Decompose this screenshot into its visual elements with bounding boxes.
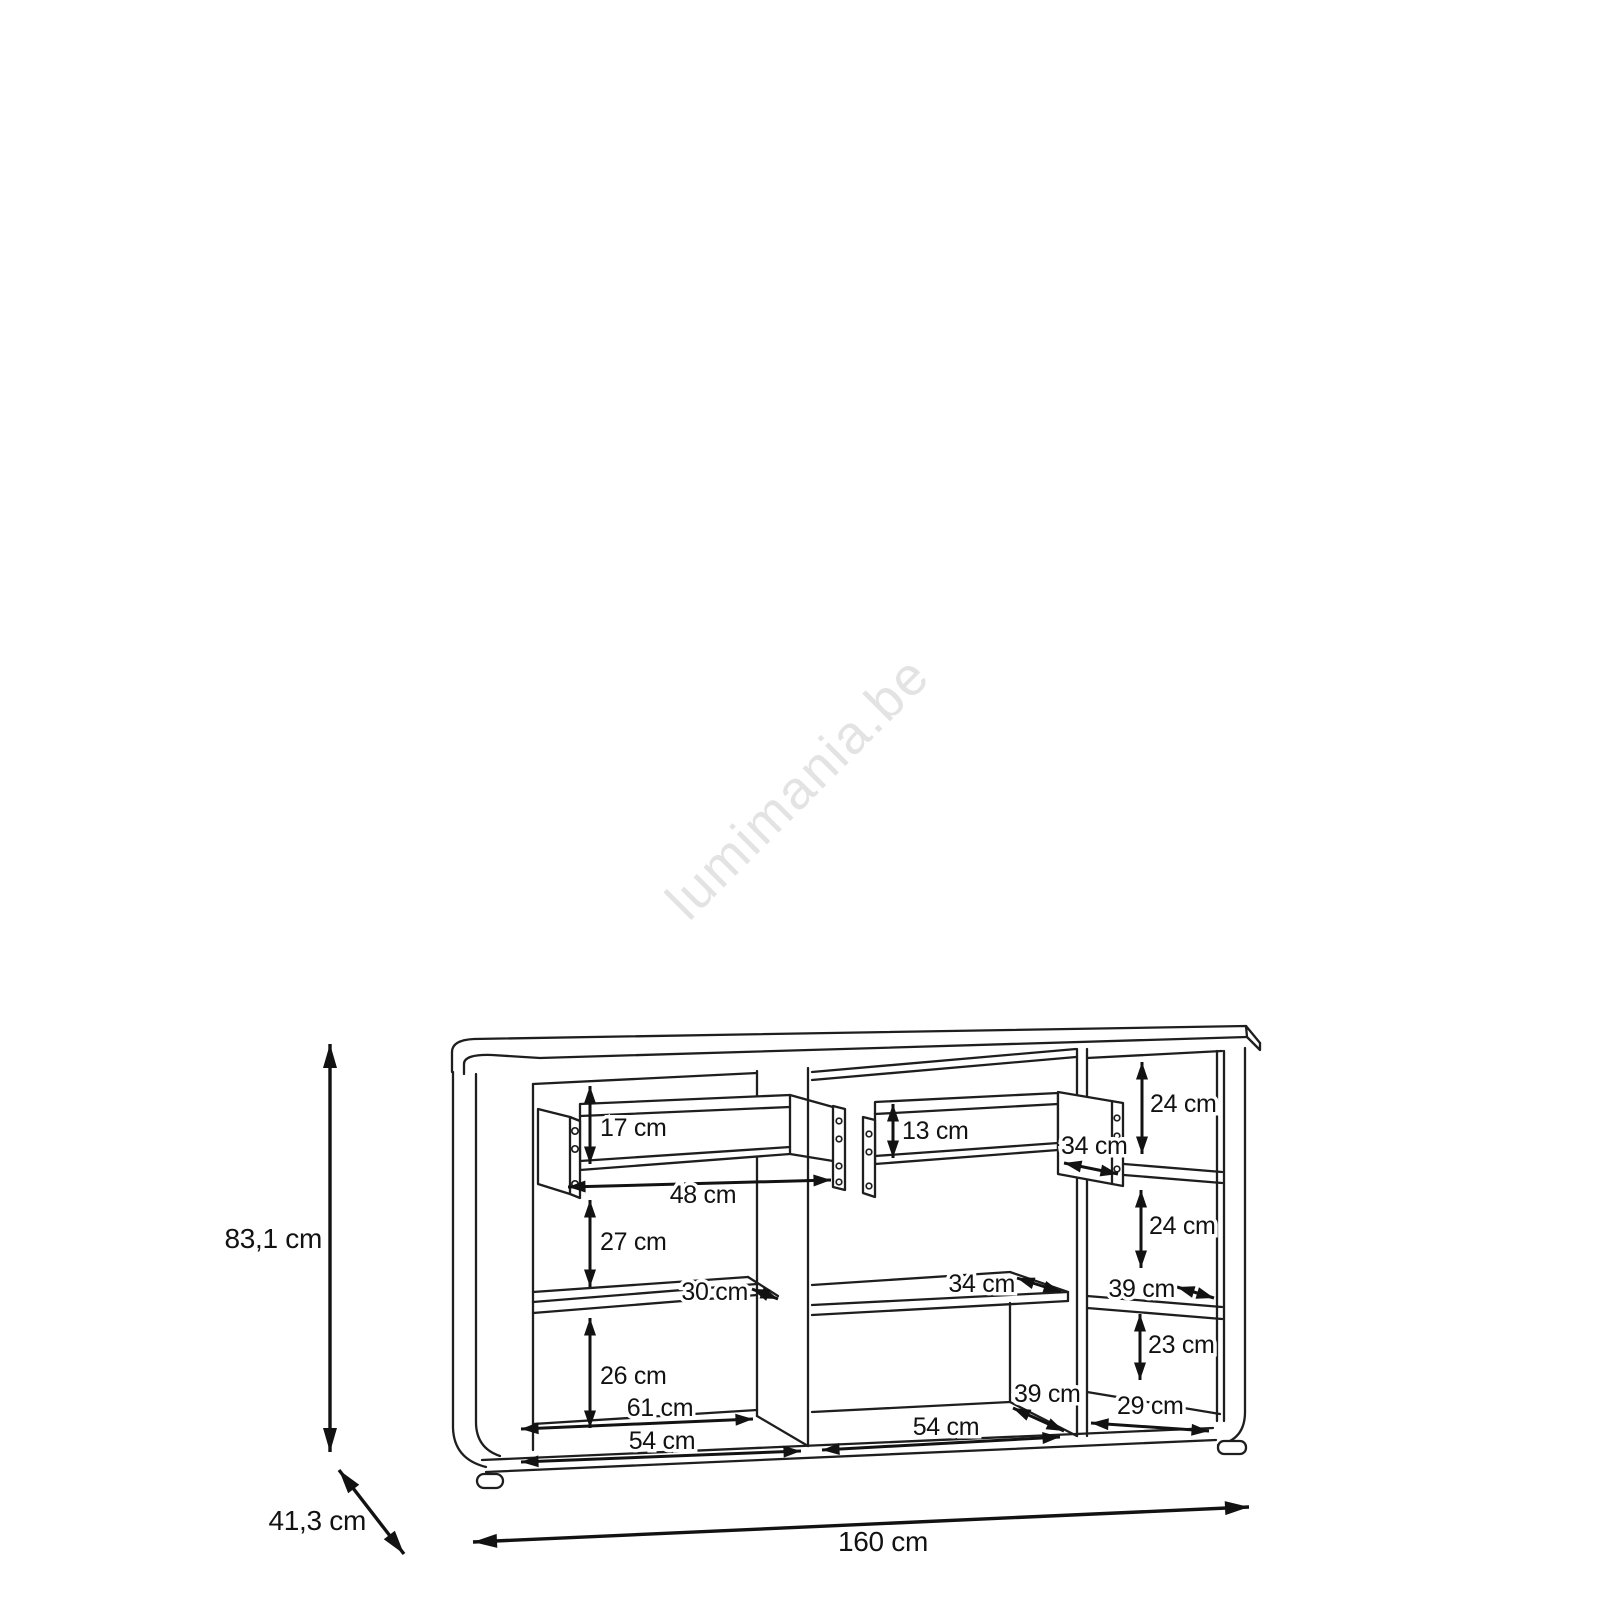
dim-label-middle-shelf-depth: 34 cm: [948, 1270, 1015, 1298]
dim-label-right-bottom-height: 23 cm: [1148, 1331, 1215, 1359]
dim-label-overall-height: 83,1 cm: [225, 1223, 323, 1254]
dim-label-left-bottom-height: 26 cm: [600, 1362, 667, 1390]
dim-label-right-top-height: 24 cm: [1150, 1090, 1217, 1118]
dim-label-overall-depth: 41,3 cm: [269, 1505, 367, 1536]
dim-label-left-front-width: 54 cm: [629, 1427, 696, 1455]
left-foot: [477, 1474, 503, 1488]
left-side-panel-outer: [453, 1072, 486, 1467]
diagram-page: lumimania.be: [0, 0, 1600, 1600]
middle-floor-back-edge: [812, 1402, 1010, 1412]
left-divider-bottom: [757, 1416, 808, 1446]
dim-label-middle-floor-depth: 39 cm: [1014, 1380, 1081, 1408]
back-top-edge-left: [533, 1073, 757, 1084]
back-top-edge-right: [1087, 1051, 1222, 1058]
dim-label-right-width: 29 cm: [1117, 1392, 1184, 1420]
dim-label-middle-drawer-depth: 34 cm: [1061, 1132, 1128, 1160]
screw-hole-icon: [836, 1136, 842, 1142]
dim-label-left-middle-height: 27 cm: [600, 1228, 667, 1256]
furniture-dimension-diagram: lumimania.be: [0, 0, 1600, 1600]
screw-hole-icon: [836, 1163, 842, 1169]
screw-hole-icon: [866, 1183, 872, 1189]
dim-arrow-middle-shelf-depth: [1017, 1278, 1061, 1292]
dim-label-overall-width: 160 cm: [838, 1526, 928, 1557]
screw-hole-icon: [866, 1149, 872, 1155]
left-side-panel-inner: [476, 1074, 500, 1456]
dim-label-middle-front-width: 54 cm: [913, 1413, 980, 1441]
dim-label-left-drawer-width: 48 cm: [670, 1181, 737, 1209]
screw-hole-icon: [572, 1128, 578, 1134]
dim-label-middle-drawer-height: 13 cm: [902, 1117, 969, 1145]
screw-hole-icon: [572, 1146, 578, 1152]
dim-arrow-right-shelf-depth: [1177, 1287, 1214, 1298]
right-shelf2-bottom: [1087, 1308, 1222, 1319]
right-foot: [1218, 1441, 1246, 1454]
dim-label-left-drawer-height: 17 cm: [600, 1114, 667, 1142]
dim-label-left-shelf-depth: 30 cm: [681, 1278, 748, 1306]
screw-hole-icon: [866, 1131, 872, 1137]
dim-label-right-middle-height: 24 cm: [1149, 1212, 1216, 1240]
left-drawer-right-connectors: [790, 1095, 833, 1161]
screw-hole-icon: [836, 1118, 842, 1124]
screw-hole-icon: [1114, 1115, 1120, 1121]
screw-hole-icon: [1114, 1166, 1120, 1172]
right-side-panel-outer: [1218, 1048, 1245, 1445]
dim-label-left-back-width: 61 cm: [627, 1394, 694, 1422]
watermark-text: lumimania.be: [655, 645, 941, 931]
dim-arrow-middle-floor-depth: [1013, 1408, 1064, 1431]
dim-label-right-shelf-depth: 39 cm: [1108, 1275, 1175, 1303]
screw-hole-icon: [836, 1179, 842, 1185]
